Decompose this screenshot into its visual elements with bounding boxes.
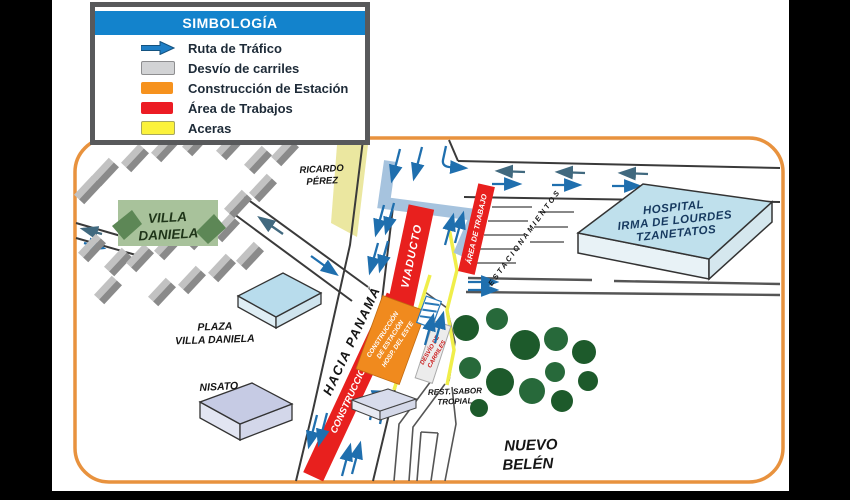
- legend-item-lane-detour: Desvío de carriles: [95, 58, 365, 78]
- legend-label: Ruta de Tráfico: [188, 41, 282, 56]
- rest-sabor-label-line1: REST. SABOR: [428, 386, 483, 397]
- gray-swatch-icon: [141, 61, 175, 75]
- red-swatch-icon: [141, 101, 175, 115]
- blue-arrow-right-icon: [141, 41, 175, 55]
- orange-swatch-icon: [141, 81, 175, 95]
- legend-header: SIMBOLOGÍA: [95, 11, 365, 35]
- legend-label: Desvío de carriles: [188, 61, 299, 76]
- nisato-label: NISATO: [199, 380, 238, 394]
- legend-label: Aceras: [188, 121, 231, 136]
- legend-label: Construcción de Estación: [188, 81, 348, 96]
- legend-title: SIMBOLOGÍA: [182, 15, 277, 31]
- legend-item-station-construction: Construcción de Estación: [95, 78, 365, 98]
- plaza-label-line1: PLAZA: [197, 320, 232, 333]
- legend-item-traffic-route: Ruta de Tráfico: [95, 38, 365, 58]
- yellow-swatch-icon: [141, 121, 175, 135]
- legend-label: Área de Trabajos: [188, 101, 293, 116]
- rest-sabor-label-line2: TROPIAL: [437, 396, 473, 406]
- legend-item-work-area: Área de Trabajos: [95, 98, 365, 118]
- svg-text:PÉREZ: PÉREZ: [306, 175, 339, 188]
- villa-daniela-area: VILLA DANIELA: [112, 200, 226, 246]
- villa-daniela-label-line1: VILLA: [148, 209, 188, 226]
- nuevo-belen-label-line2: BELÉN: [502, 455, 555, 474]
- legend-item-sidewalks: Aceras: [95, 118, 365, 138]
- traffic-detour-map-screenshot: VIADUCTO CONSTRUCCIÓN DE ÁREA DE TRABAJO…: [0, 0, 850, 500]
- legend: SIMBOLOGÍA Ruta de Tráfico Desvío de car…: [90, 2, 370, 145]
- villa-daniela-label-line2: DANIELA: [138, 225, 199, 243]
- svg-text:RICARDO: RICARDO: [299, 163, 344, 176]
- nuevo-belen-label-line1: NUEVO: [504, 436, 558, 455]
